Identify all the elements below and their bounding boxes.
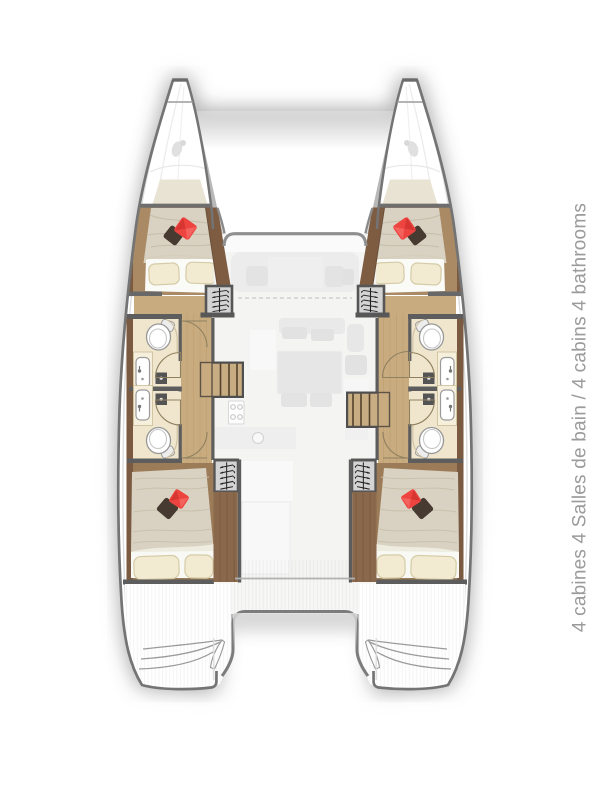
svg-text:4 cabines 4 Salles de bain / 4: 4 cabines 4 Salles de bain / 4 cabins 4 … <box>570 203 591 632</box>
